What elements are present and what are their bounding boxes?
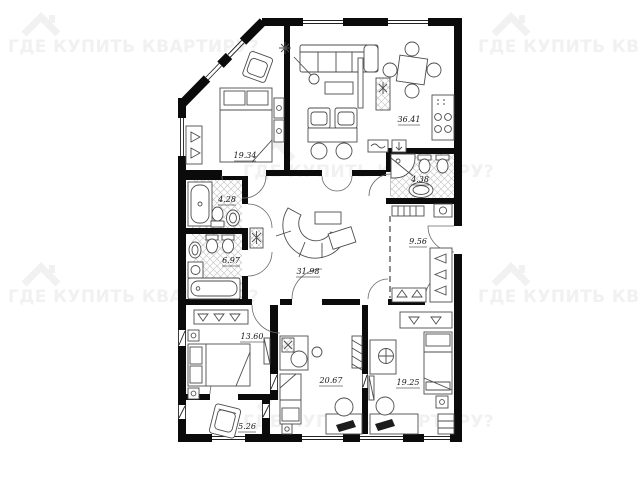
work-desk	[370, 397, 418, 434]
wardrobe	[400, 312, 452, 328]
room-hallway: 31.98	[250, 208, 356, 277]
washing-machine	[434, 204, 452, 217]
wall-hung-toilet	[206, 235, 218, 253]
dining-table-with-chairs	[383, 42, 441, 98]
work-desk	[326, 398, 362, 434]
wall-hung-toilet	[418, 155, 431, 173]
radiator	[352, 336, 362, 370]
wardrobe	[430, 248, 452, 302]
area-label-bedroom-bottom-right: 19.25	[397, 378, 420, 387]
washing-machine	[188, 262, 203, 278]
desk-chair	[335, 398, 353, 416]
dressing-table	[370, 340, 396, 374]
area-label-room-bottom-middle: 20.67	[319, 376, 344, 385]
kitchen-counter	[432, 95, 454, 140]
bed	[280, 374, 301, 424]
pouf	[336, 143, 352, 159]
wardrobe	[392, 288, 426, 302]
armchair	[308, 108, 330, 128]
wardrobe	[194, 310, 248, 324]
floor-plan-page: { "watermark": { "text": "ГДЕ КУПИТЬ КВА…	[0, 0, 640, 480]
area-label-bedroom-top-left: 19.34	[234, 151, 257, 160]
area-label-bathroom-top-right: 4.38	[410, 175, 429, 184]
desk-chair	[291, 351, 307, 367]
plant-stand	[376, 78, 390, 110]
coffee-table	[325, 82, 353, 94]
room-corridor: 9.56	[392, 204, 452, 302]
cabinet	[438, 414, 454, 434]
speaker	[188, 388, 199, 399]
area-label-shower-room: 4.28	[217, 195, 236, 204]
area-label-living-kitchen: 36.41	[398, 115, 421, 124]
room-bathroom-top-right: 4.38	[391, 154, 454, 198]
area-label-hallway: 31.98	[297, 267, 320, 276]
armchair	[209, 403, 241, 438]
room-bathroom-left: 6.97	[188, 234, 242, 299]
sink	[227, 210, 240, 226]
stool	[312, 347, 322, 357]
desk-chair	[376, 397, 394, 415]
shower-cabin	[188, 182, 212, 226]
side-table	[308, 128, 357, 142]
room-shower-left: 4.28	[188, 180, 242, 228]
area-label-bedroom-bottom-left: 13.60	[241, 332, 264, 341]
sofa	[300, 45, 378, 72]
wall-hung-bidet	[436, 155, 449, 173]
apartment-floor-plan: 19.34	[0, 0, 640, 480]
nightstand	[274, 98, 284, 118]
pouf	[311, 143, 327, 159]
shelf	[358, 58, 363, 108]
room-bedroom-bottom-right: 19.25	[369, 312, 454, 434]
nightstand	[274, 120, 284, 142]
toilet	[211, 207, 224, 227]
area-label-corridor: 9.56	[409, 237, 427, 246]
bed	[188, 344, 250, 386]
room-bedroom-bottom-left: 13.60	[188, 310, 270, 399]
speaker	[188, 330, 199, 341]
room-bottom-middle: 20.67	[280, 336, 362, 434]
room-living-kitchen: 36.41	[294, 42, 454, 159]
wardrobe	[186, 126, 202, 164]
wall-hung-bidet	[222, 235, 234, 253]
hanger-icon	[198, 314, 240, 321]
small-table	[315, 212, 341, 224]
room-bedroom-top-left: 19.34	[186, 42, 291, 164]
speaker	[282, 424, 292, 434]
desk	[280, 336, 308, 370]
armchair	[335, 108, 357, 128]
sink	[189, 242, 201, 258]
armchair	[242, 51, 273, 84]
room-balcony: 5.26	[209, 403, 256, 438]
area-label-balcony: 5.26	[238, 422, 256, 431]
bed	[424, 332, 452, 394]
plant	[250, 228, 263, 248]
towel-radiator	[392, 206, 424, 216]
nightstand	[436, 396, 448, 408]
area-label-bathroom-left: 6.97	[222, 256, 241, 265]
bathtub	[188, 278, 240, 299]
